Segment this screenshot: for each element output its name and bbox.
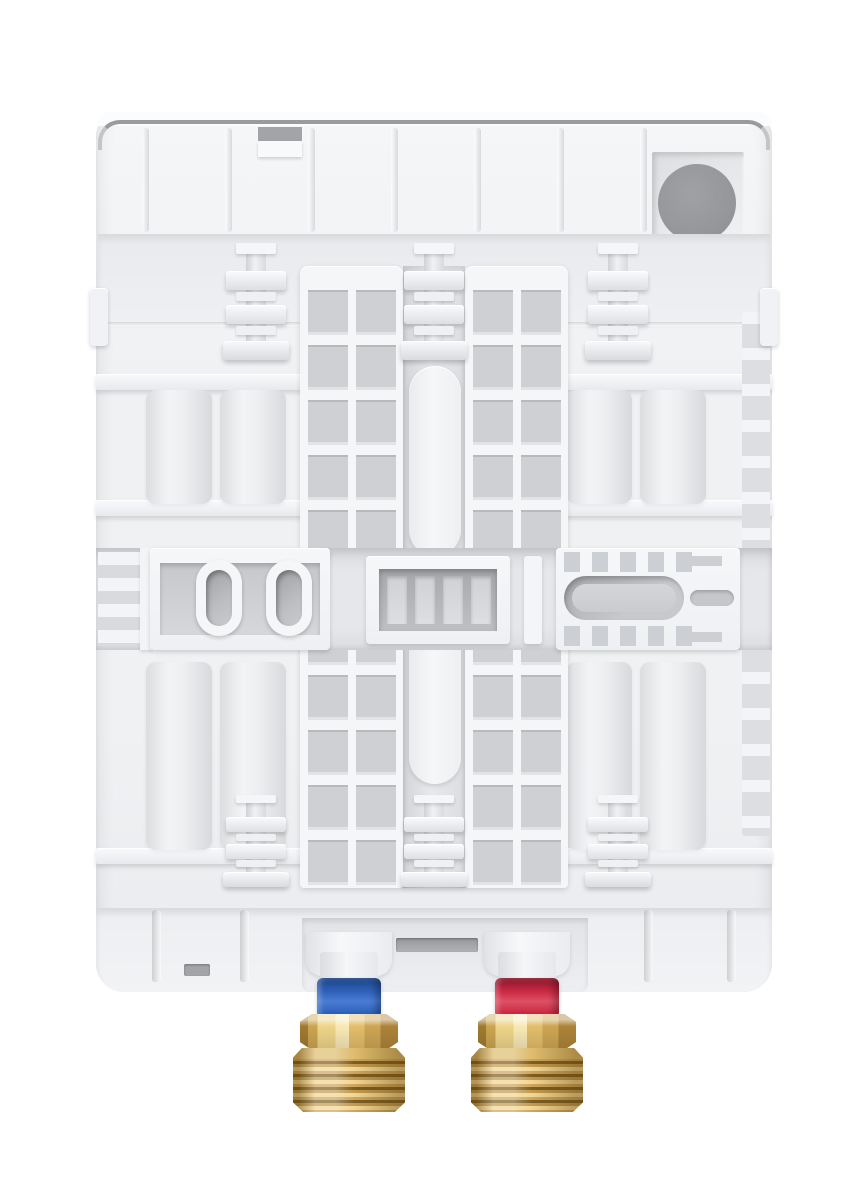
clip-tab [414, 860, 454, 867]
top-rib [225, 128, 232, 232]
clip-band [404, 844, 464, 859]
bottom-tier [96, 908, 772, 992]
clip-tab [236, 860, 276, 867]
top-notch [258, 127, 302, 157]
stadium-slot-inner [572, 584, 676, 612]
center-capsule-slot-upper [409, 366, 461, 556]
cold-ring-marker [317, 978, 381, 1018]
band-left-plate [150, 548, 330, 650]
clip-band [588, 305, 648, 324]
mounting-clip [404, 243, 464, 360]
top-rib [142, 128, 149, 232]
bottom-center-slot [396, 938, 478, 952]
stadium-slot [564, 576, 684, 620]
band-side-slot [690, 590, 734, 606]
top-rib [557, 128, 564, 232]
clip-tab [598, 326, 638, 335]
bracket-slot [387, 576, 407, 624]
cable-entry-recess [652, 152, 744, 246]
clip-tab [414, 834, 454, 841]
mounting-clip [404, 795, 464, 887]
bracket-slot [471, 576, 491, 624]
clip-band [226, 844, 286, 859]
clip-band [226, 271, 286, 290]
bottom-groove [152, 910, 161, 982]
oval-mounting-hole [196, 560, 242, 636]
band-teeth-bottom [564, 626, 698, 646]
top-notch-recess [258, 127, 302, 141]
clip-band [404, 817, 464, 832]
clip-tab [414, 326, 454, 335]
mounting-clip [588, 795, 648, 887]
bracket-slot [415, 576, 435, 624]
clip-band [588, 844, 648, 859]
clip-band [588, 271, 648, 290]
clip-tab [236, 292, 276, 301]
clip-collar [223, 872, 289, 887]
hot-brass-hex-nut [478, 1014, 576, 1050]
band-teeth-top [564, 552, 698, 572]
molded-cylinder-rib [566, 390, 632, 504]
top-rib [308, 128, 315, 232]
top-rib [474, 128, 481, 232]
molded-cylinder-rib [640, 662, 706, 850]
molded-cylinder-rib [640, 390, 706, 504]
oval-mounting-hole [266, 560, 312, 636]
band-right-plate [556, 548, 740, 650]
clip-cap [598, 243, 638, 254]
clip-tab [598, 292, 638, 301]
molded-cylinder-rib [220, 390, 286, 504]
middle-mounting-band [96, 548, 772, 650]
clip-cap [236, 243, 276, 254]
clip-band [226, 817, 286, 832]
molded-cylinder-rib [146, 390, 212, 504]
mounting-clip [226, 795, 286, 887]
center-bracket-recess [379, 569, 497, 631]
molded-cylinder-rib [146, 662, 212, 850]
hot-water-outlet-fitting [471, 952, 583, 1112]
clip-band [226, 305, 286, 324]
top-notch-ledge [258, 141, 302, 157]
clip-tab [414, 292, 454, 301]
clip-collar [401, 341, 467, 360]
bottom-groove [240, 910, 249, 982]
clip-band [404, 305, 464, 324]
band-hook-top [692, 556, 722, 566]
top-rib [391, 128, 398, 232]
band-vertical-bar [524, 556, 542, 644]
clip-band [404, 271, 464, 290]
oval-hole-opening [206, 570, 232, 626]
clip-collar [401, 872, 467, 887]
right-side-tab [760, 288, 778, 346]
band-hook-bottom [692, 632, 722, 642]
left-side-tab [90, 288, 108, 346]
bottom-groove [727, 910, 736, 982]
bottom-small-slot [184, 964, 210, 976]
clip-cap [414, 795, 454, 803]
clip-cap [414, 243, 454, 254]
mounting-clip [226, 243, 286, 360]
bracket-slot [443, 576, 463, 624]
center-bracket [366, 556, 510, 644]
top-rib [640, 128, 647, 232]
housing-top-lip-line [98, 120, 770, 150]
clip-collar [223, 341, 289, 360]
clip-tab [598, 834, 638, 841]
clip-tab [236, 326, 276, 335]
clip-tab [236, 834, 276, 841]
clip-collar [585, 341, 651, 360]
clip-band [588, 817, 648, 832]
clip-collar [585, 872, 651, 887]
clip-cap [598, 795, 638, 803]
cable-entry-hole [658, 164, 736, 242]
hot-ring-marker [495, 978, 559, 1018]
oval-hole-opening [276, 570, 302, 626]
bottom-groove [644, 910, 653, 982]
clip-cap [236, 795, 276, 803]
mounting-clip [588, 243, 648, 360]
cold-brass-threaded-plug [293, 1048, 405, 1112]
hot-brass-threaded-plug [471, 1048, 583, 1112]
clip-tab [598, 860, 638, 867]
cold-brass-hex-nut [300, 1014, 398, 1050]
horizontal-rib [562, 374, 772, 390]
cold-water-inlet-fitting [293, 952, 405, 1112]
horizontal-rib [96, 374, 308, 390]
product-photo-stage [0, 0, 867, 1200]
back-panel-housing [96, 112, 772, 992]
